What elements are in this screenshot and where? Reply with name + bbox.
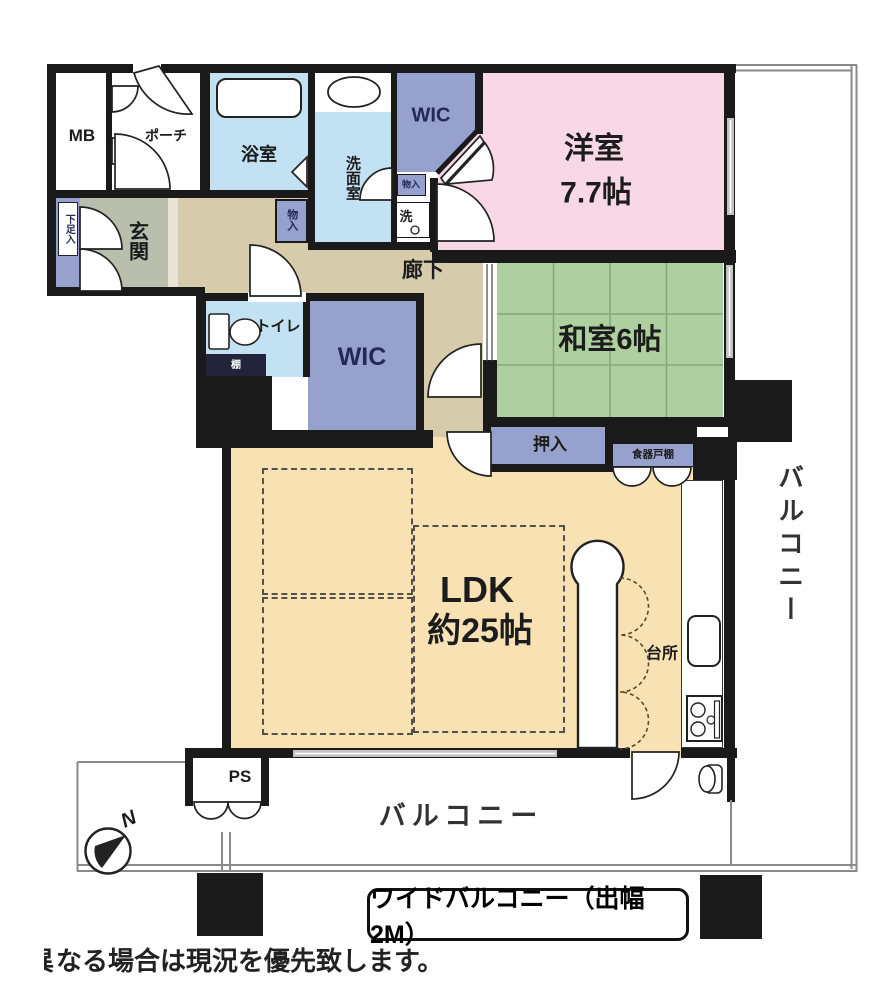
wall-segment (196, 293, 206, 383)
label-shoe-cabinet: 下足入 (63, 214, 74, 244)
label-futon-closet: 押入 (533, 436, 567, 454)
kitchen-counter-strip (681, 480, 723, 748)
pillar (700, 875, 762, 939)
wall-segment (261, 748, 269, 806)
hallway-area-branch (424, 296, 485, 448)
label-western-size: 7.7帖 (560, 177, 632, 209)
pillar (197, 873, 263, 936)
wall-segment (303, 300, 310, 377)
label-western-room: 洋室 (564, 133, 624, 165)
ldk-dashed-outline (262, 597, 413, 735)
label-dish-cupboard: 食器戸棚 (632, 449, 674, 460)
wall-segment (432, 250, 736, 263)
balcony-sink-bowl (699, 766, 715, 792)
wall-segment (491, 464, 613, 472)
label-storage-side: 物入 (285, 209, 297, 231)
mb-door (112, 138, 138, 164)
washroom-niche (315, 72, 392, 112)
label-ldk: LDK (440, 571, 514, 609)
label-balcony-bottom: バルコニー (379, 802, 543, 830)
floorplan: MB ポーチ 浴室 洗面室 WIC 洋室 7.7帖 下足入 玄関 物入 物入 洗… (0, 0, 895, 1000)
wall-segment (231, 430, 433, 448)
wall-segment (47, 190, 315, 198)
wall-segment (391, 64, 397, 242)
caption-text: 異なる場合は現況を優先致します。 (44, 941, 443, 978)
wall-segment (222, 437, 231, 758)
wall-segment (724, 460, 735, 758)
wall-segment (47, 287, 205, 296)
wall-segment (430, 178, 438, 252)
label-bathroom: 浴室 (241, 146, 277, 165)
label-pipe-space: PS (229, 768, 252, 786)
wall-segment (222, 748, 630, 758)
wall-segment (416, 296, 424, 448)
ps-door (194, 802, 228, 819)
bathroom-area (210, 72, 308, 192)
wall-segment (681, 748, 737, 758)
label-kitchen: 台所 (646, 647, 678, 664)
label-storage-upper: 物入 (402, 180, 420, 189)
ldk-dashed-outline (262, 468, 413, 595)
label-shelf: 棚 (231, 361, 241, 372)
compass-north-label: N (118, 807, 140, 832)
label-porch: ポーチ (145, 129, 187, 144)
ps-door (228, 802, 261, 819)
wall-segment (312, 242, 432, 250)
wall-segment (200, 64, 210, 198)
label-entrance: 玄関 (126, 221, 147, 261)
wall-segment (47, 64, 56, 296)
pillar (728, 380, 792, 442)
wall-segment (483, 417, 491, 472)
label-ldk-size: 約25帖 (427, 614, 533, 650)
wall-segment (483, 360, 497, 418)
wide-balcony-note: ワイドバルコニー（出幅2M） (367, 888, 689, 941)
japanese-sliding-door (483, 263, 497, 362)
balcony-sink (705, 765, 722, 793)
wall-segment (724, 73, 735, 252)
label-wic-main: WIC (338, 344, 387, 370)
caption-clipped-char: 異 (44, 941, 56, 978)
label-mb: MB (69, 127, 95, 145)
mb-door (112, 86, 138, 112)
label-balcony-right: バルコニー (775, 464, 802, 629)
compass-icon (86, 829, 131, 874)
wall-segment (185, 748, 225, 758)
front-door (134, 66, 192, 114)
label-wic-upper: WIC (412, 106, 451, 127)
label-hallway: 廊下 (402, 260, 444, 282)
label-japanese-room: 和室6帖 (558, 325, 661, 355)
entrance-step (168, 198, 178, 287)
wall-segment (196, 293, 424, 301)
label-washroom: 洗面室 (344, 156, 360, 201)
label-washer: 洗 (399, 210, 412, 224)
wall-segment (605, 427, 697, 443)
kitchen-balcony-door (632, 752, 679, 799)
wall-segment (106, 72, 112, 192)
wall-segment (308, 64, 315, 250)
wall-segment (475, 64, 483, 134)
label-toilet: トイレ (255, 319, 300, 335)
wall-segment (727, 758, 735, 802)
label-bookshelf: 本棚 (338, 433, 358, 444)
